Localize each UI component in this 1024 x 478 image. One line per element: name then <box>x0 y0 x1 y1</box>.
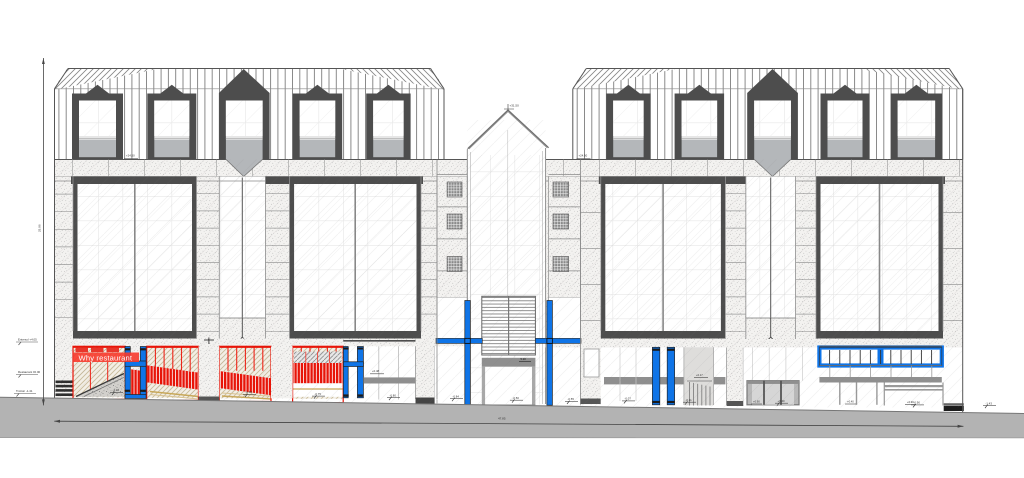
svg-text:-0.80: -0.80 <box>390 393 397 397</box>
svg-text:Entresol +4.05: Entresol +4.05 <box>18 338 37 342</box>
svg-text:-0.50: -0.50 <box>513 396 520 400</box>
svg-text:-0.84: -0.84 <box>453 394 460 398</box>
svg-text:25.96: 25.96 <box>38 224 42 232</box>
svg-text:-0.11: -0.11 <box>686 398 693 402</box>
svg-text:5.20: 5.20 <box>521 357 527 361</box>
svg-text:-0.55: -0.55 <box>568 397 575 401</box>
svg-text:47.85: 47.85 <box>498 417 506 421</box>
svg-text:-0.75: -0.75 <box>315 392 322 396</box>
svg-text:+31.50: +31.50 <box>510 104 520 108</box>
svg-text:+0.40: +0.40 <box>778 399 786 403</box>
svg-text:-1.43: -1.43 <box>986 401 993 405</box>
svg-text:Trottoir -1.41: Trottoir -1.41 <box>16 389 33 393</box>
svg-text:-1.18: -1.18 <box>113 388 120 392</box>
svg-text:-0.90: -0.90 <box>914 401 921 405</box>
svg-text:Restaurant ±0.00: Restaurant ±0.00 <box>18 370 41 374</box>
svg-text:+24.50: +24.50 <box>579 154 588 158</box>
svg-text:-0.68: -0.68 <box>246 390 253 394</box>
svg-text:+24.50: +24.50 <box>126 154 135 158</box>
svg-text:-0.07: -0.07 <box>625 397 632 401</box>
